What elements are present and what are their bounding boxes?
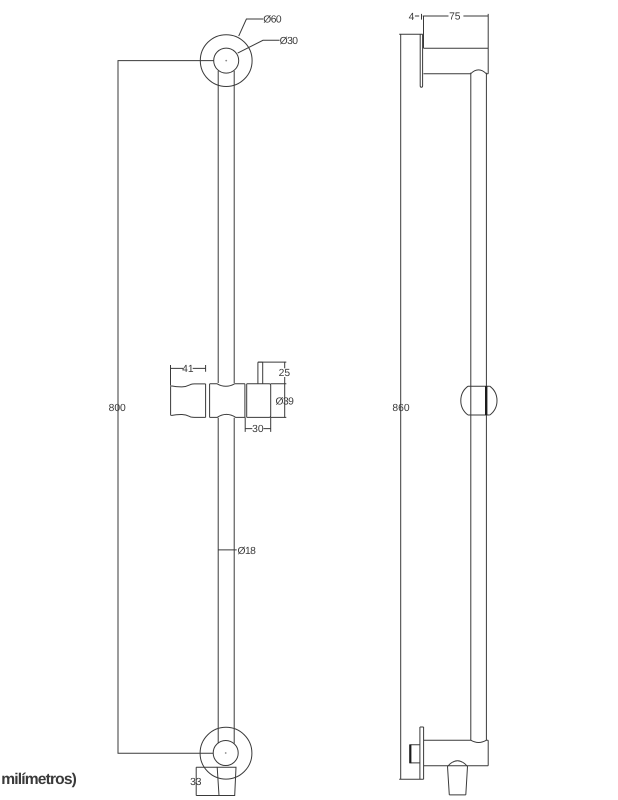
svg-text:75: 75 xyxy=(449,12,461,23)
svg-text:800: 800 xyxy=(109,403,126,414)
svg-text:41: 41 xyxy=(182,364,194,375)
svg-text:860: 860 xyxy=(392,403,409,414)
svg-text:25: 25 xyxy=(279,368,291,379)
svg-text:Ø30: Ø30 xyxy=(280,36,299,47)
svg-text:Ø18: Ø18 xyxy=(237,546,256,557)
svg-text:33: 33 xyxy=(190,777,202,788)
svg-text:milímetros): milímetros) xyxy=(1,771,76,788)
svg-text:Ø60: Ø60 xyxy=(263,15,282,26)
svg-text:Ø39: Ø39 xyxy=(275,397,294,408)
svg-text:4: 4 xyxy=(409,12,415,23)
svg-text:30: 30 xyxy=(252,424,264,435)
